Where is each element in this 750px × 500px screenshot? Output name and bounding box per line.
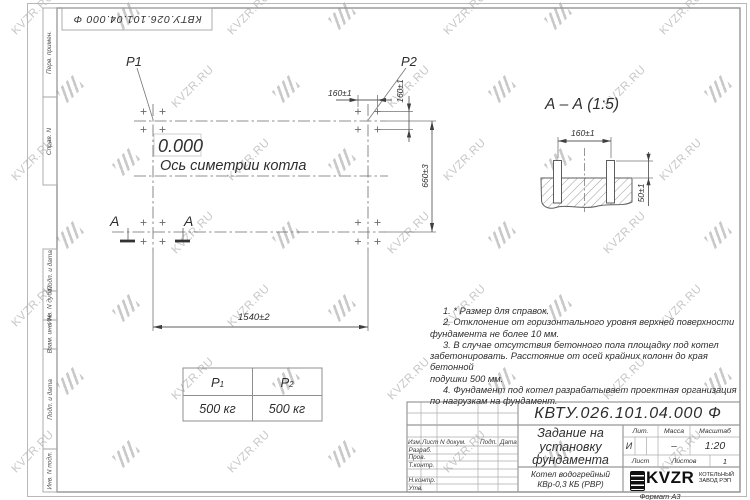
note-line: 1. * Размер для справок. <box>430 306 738 317</box>
top-designation-text: КВТУ.026.101.04.000 Ф <box>73 13 202 25</box>
drawing-linework <box>0 0 750 500</box>
margin-label-inv-podl: Инв. N подл. <box>43 449 57 492</box>
section-dim-50: 50±1 <box>636 184 646 203</box>
load-point-p2-label: P2 <box>401 54 417 69</box>
note-line: забетонировать. Расстояние от осей крайн… <box>430 351 738 374</box>
load-point-p1-label: P1 <box>126 54 142 69</box>
note-line: 4. Фундамент под котел разрабатывает про… <box>430 385 738 396</box>
margin-label-podp-data-1: Подп. и дата <box>43 249 57 291</box>
dim-160-side: 160±1 <box>395 79 405 103</box>
col-header-data: Дата <box>500 439 517 446</box>
value-massa: – <box>658 437 690 455</box>
dim-160-top: 160±1 <box>328 88 352 98</box>
col-header-podp: Подп. <box>480 439 497 446</box>
col-header-list: Лист <box>422 439 438 446</box>
header-list2: Лист <box>623 456 658 467</box>
section-letter-right: A <box>184 213 193 229</box>
row-label-nkontr: Н.контр. <box>409 477 436 484</box>
margin-label-vzam-inv: Взам. инв. N <box>43 320 57 349</box>
value-masshtab: 1:20 <box>690 437 740 455</box>
drawing-sheet: KVZR.RUKVZR.RUKVZR.RUKVZR.RUKVZR.RUKVZR.… <box>0 0 750 500</box>
col-header-izm: Изм. <box>408 439 422 446</box>
margin-label-sprav-n: Справ. N <box>43 97 57 185</box>
section-dim-160: 160±1 <box>571 128 595 138</box>
section-view-title: А – А (1:5) <box>545 96 619 114</box>
elevation-mark: 0.000 <box>158 136 203 157</box>
kvzr-logo-text: KVZR <box>646 468 694 488</box>
header-listov: Листов <box>658 456 710 467</box>
dim-660: 660±3 <box>420 164 430 188</box>
top-designation-box: КВТУ.026.101.04.000 Ф <box>62 8 212 30</box>
row-label-prov: Пров. <box>409 454 426 461</box>
section-letter-left: A <box>110 213 119 229</box>
note-line: 2. Отклонение от горизонтального уровня … <box>430 317 738 328</box>
row-label-razrab: Разраб. <box>409 447 432 454</box>
row-label-utv: Утв. <box>409 485 424 492</box>
row-label-tkontr: Т.контр. <box>409 462 435 469</box>
load-table-header-p2: P2 <box>252 370 322 394</box>
margin-label-perv-primen: Перв. примен. <box>43 8 57 97</box>
note-line: подушки 500 мм. <box>430 374 738 385</box>
margin-label-podp-data-2: Подп. и дата <box>43 349 57 449</box>
header-lit: Лит. <box>623 427 658 436</box>
load-table-value-p1: 500 кг <box>183 398 252 419</box>
note-line: фундамента не более 10 мм. <box>430 329 738 340</box>
title-block-designation: КВТУ.026.101.04.000 Ф <box>520 403 736 424</box>
header-masshtab: Масштаб <box>690 427 740 436</box>
technical-notes: 1. * Размер для справок. 2. Отклонение о… <box>430 306 738 408</box>
header-massa: Масса <box>658 427 690 436</box>
dim-1540: 1540±2 <box>238 312 270 323</box>
value-lit: И <box>623 437 635 455</box>
note-line: 3. В случае отсутствия бетонного пола пл… <box>430 340 738 351</box>
load-table-header-p1: P1 <box>183 370 252 394</box>
load-table-value-p2: 500 кг <box>252 398 322 419</box>
format-label: Формат А3 <box>620 493 700 500</box>
document-title: Задание на установку фундамента <box>518 427 623 468</box>
value-listov: 1 <box>710 456 740 467</box>
col-header-ndok: N докум. <box>440 439 466 446</box>
product-name: Котел водогрейный КВр-0,3 КБ (РВР) <box>518 470 623 489</box>
boiler-axis-label: Ось симетрии котла <box>160 158 306 174</box>
kvzr-logo-subtitle: КОТЕЛЬНЫЙ ЗАВОД РЭП <box>699 472 734 485</box>
kvzr-logo-icon <box>630 471 645 491</box>
